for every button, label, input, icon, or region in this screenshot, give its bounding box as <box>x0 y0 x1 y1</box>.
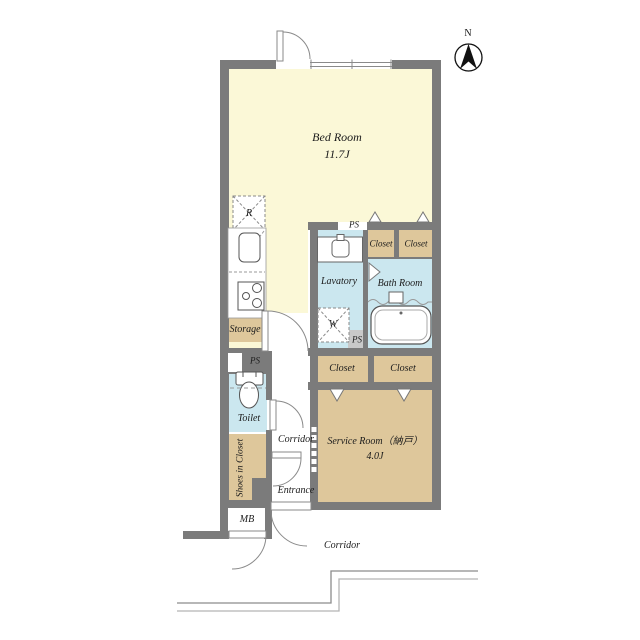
door-swing-toilet <box>270 400 303 430</box>
ps-toilet-label: PS <box>250 357 260 366</box>
north-arrow-icon <box>455 44 482 71</box>
shoes-closet-label: Shoes in Closet <box>236 439 246 498</box>
closet-top-left-label: Closet <box>369 240 392 249</box>
door-swing-corridor <box>272 452 301 486</box>
washer-label: W <box>329 320 337 330</box>
bathroom-label: Bath Room <box>378 279 423 289</box>
closet-mid-left-label: Closet <box>329 364 355 374</box>
floor-plan: Bed Room 11.7J R PS Closet Closet Lavato… <box>0 0 640 640</box>
door-swing-entrance <box>271 502 311 546</box>
door-swing-mb <box>229 531 266 569</box>
corridor-label: Corridor <box>278 435 314 445</box>
closet-top-right-label: Closet <box>404 240 427 249</box>
washbasin-icon <box>318 235 363 263</box>
mb-label: MB <box>240 515 254 525</box>
entrance-label: Entrance <box>278 486 315 496</box>
outer-corridor-label: Corridor <box>324 541 360 551</box>
lavatory-label: Lavatory <box>321 277 357 287</box>
toilet-label: Toilet <box>238 414 260 424</box>
compass-north-label: N <box>464 29 471 39</box>
service-room-size-label: 4.0J <box>367 452 384 462</box>
storage-label: Storage <box>229 325 260 335</box>
service-room-label: Service Room（納戸） <box>327 437 422 447</box>
refrigerator-label: R <box>246 209 252 219</box>
ps-top-label: PS <box>349 221 359 230</box>
bedroom-size-label: 11.7J <box>324 148 349 160</box>
toilet-icon <box>230 372 266 408</box>
fixtures-layer <box>0 0 640 640</box>
bathtub-icon <box>368 292 432 344</box>
window-icon <box>310 60 392 70</box>
closet-mid-right-label: Closet <box>390 364 416 374</box>
ps-lavatory-label: PS <box>352 336 362 345</box>
door-swing-kitchen <box>262 311 308 351</box>
door-swing-balcony <box>277 31 310 61</box>
bedroom-label: Bed Room <box>312 131 362 143</box>
kitchen-counter-icon <box>228 228 266 318</box>
corridor-boundary-lines <box>177 571 478 611</box>
